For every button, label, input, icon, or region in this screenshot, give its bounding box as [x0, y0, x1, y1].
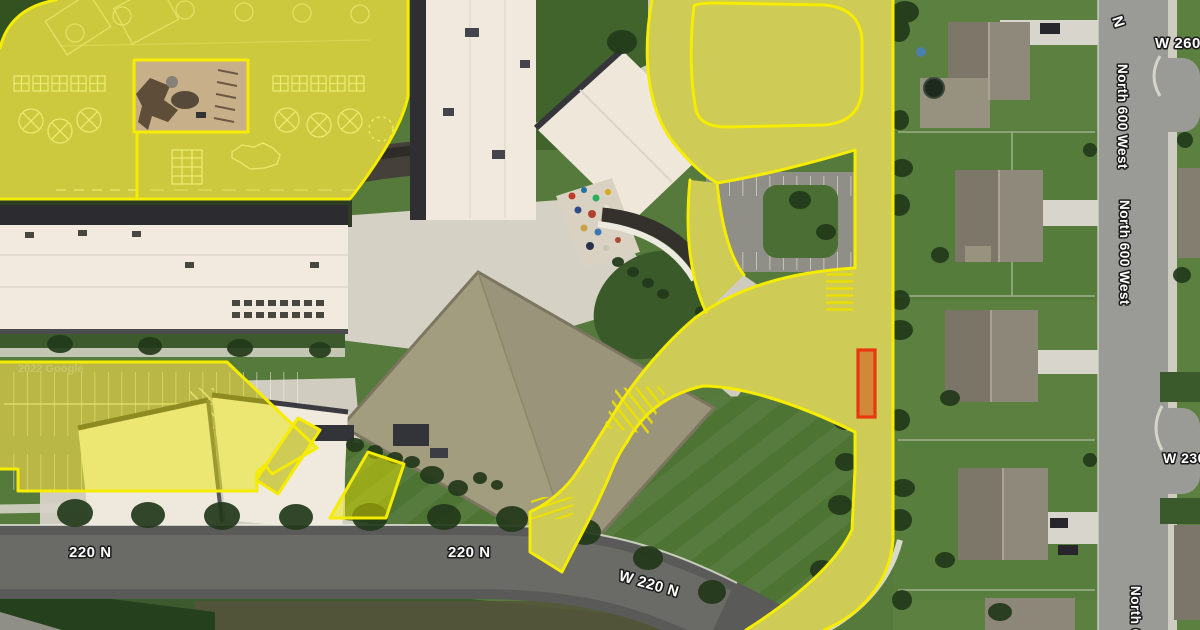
satellite-map[interactable]: 2022 Google 220 N 220 N W 220 N W 260 W …: [0, 0, 1200, 630]
watermark: 2022 Google: [18, 363, 83, 375]
street-label-220n-center: 220 N: [448, 544, 491, 561]
street-label-220n-left: 220 N: [69, 544, 112, 561]
red-marker[interactable]: [858, 350, 875, 417]
street-label-n600w-mid: North 600 West: [1117, 200, 1132, 305]
street-label-w230: W 230: [1163, 450, 1200, 466]
street-label-w260: W 260: [1155, 35, 1200, 52]
crosswalk-hatch: [826, 272, 853, 312]
street-label-n600w-upper: North 600 West: [1115, 64, 1130, 169]
map-canvas[interactable]: 2022 Google 220 N 220 N W 220 N W 260 W …: [0, 0, 1200, 630]
house: [1174, 525, 1200, 620]
north-wing-roof: [410, 0, 536, 220]
sand-playground: [134, 60, 248, 132]
house: [1178, 168, 1200, 258]
trampoline: [924, 78, 944, 98]
street-label-n600w-bottom: North 600 West: [1128, 586, 1143, 630]
west-wing-roof: [0, 225, 348, 334]
